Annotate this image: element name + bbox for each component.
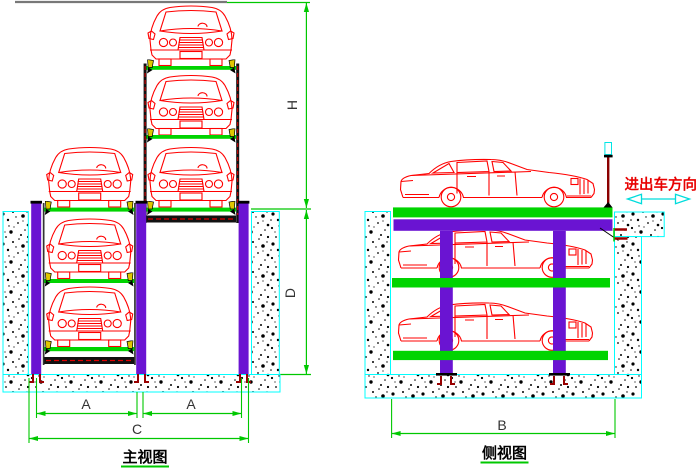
svg-text:D: D	[282, 288, 298, 298]
svg-text:H: H	[284, 100, 300, 110]
svg-text:主视图: 主视图	[122, 448, 167, 466]
svg-text:A: A	[81, 396, 91, 412]
svg-text:A: A	[186, 396, 196, 412]
svg-text:侧视图: 侧视图	[482, 444, 527, 462]
svg-text:C: C	[132, 421, 142, 437]
svg-text:进出车方向: 进出车方向	[625, 176, 698, 194]
svg-text:B: B	[497, 417, 506, 433]
